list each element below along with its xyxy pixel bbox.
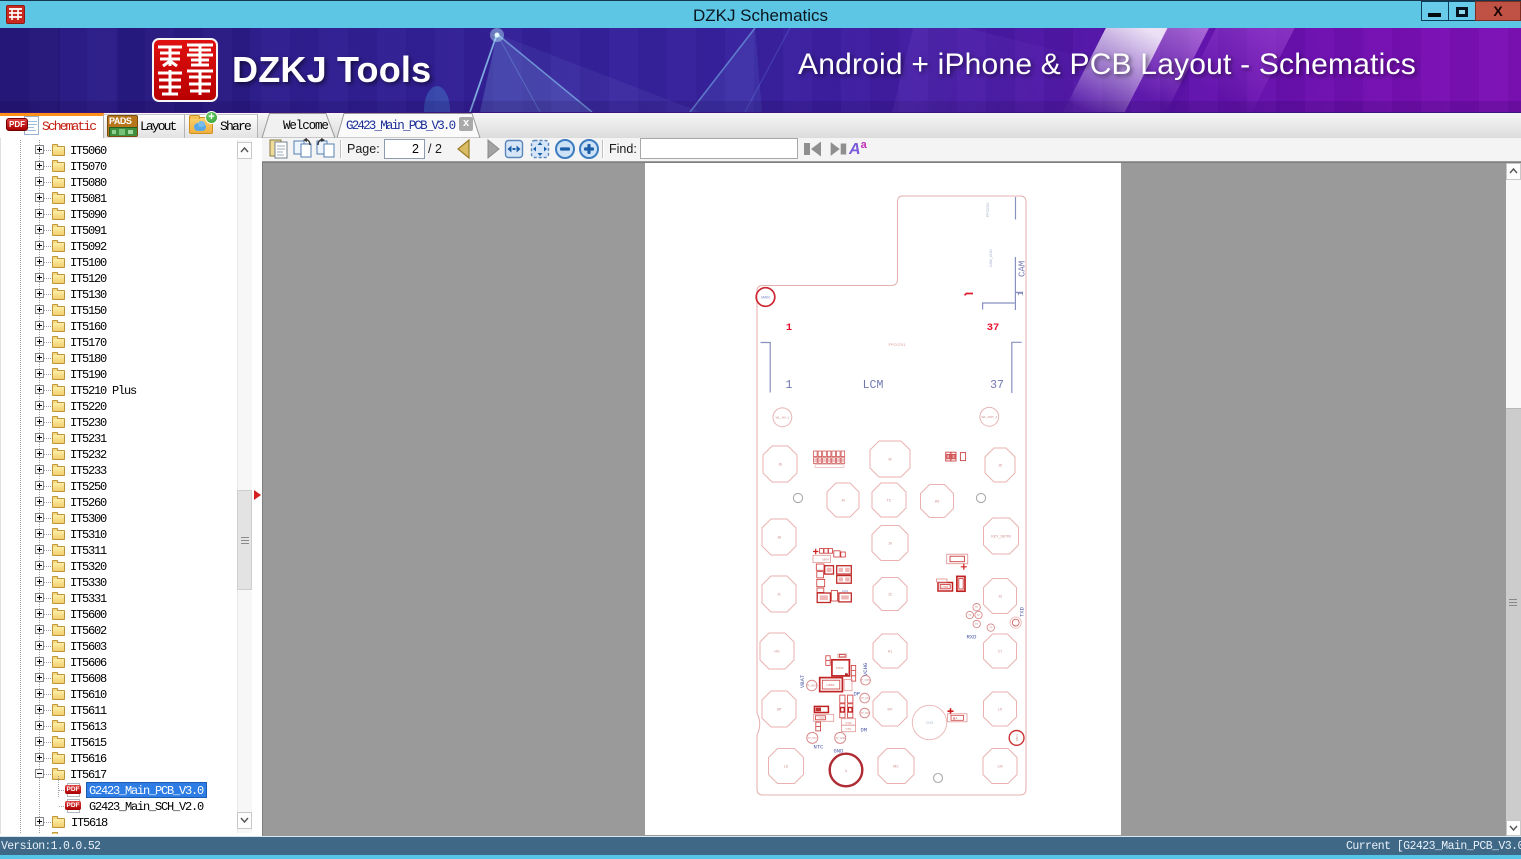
svg-text:A5: A5 [935,499,939,503]
svg-text:TP: TP [975,623,978,626]
svg-text:TC: TC [887,498,892,502]
svg-text:TP: TP [989,627,992,630]
svg-text:RXD: RXD [967,634,978,641]
svg-text:TXD: TXD [1019,606,1026,617]
svg-text:TP_NTC: TP_NTC [808,737,818,740]
svg-text:J3: J3 [998,594,1002,598]
svg-text:1: 1 [845,768,848,773]
svg-text:LM: LM [998,764,1003,768]
svg-text:KEY_SE7IN: KEY_SE7IN [991,534,1011,538]
svg-text:J1: J1 [777,592,781,596]
svg-text:MC: MC [893,764,899,768]
svg-text:37: 37 [987,322,1000,334]
svg-text:J4: J4 [841,498,845,502]
svg-text:MAIN: MAIN [761,296,770,300]
svg-text:DM: DM [861,727,868,734]
svg-text:MIC1: MIC1 [1015,734,1019,741]
svg-text:VBAT: VBAT [799,674,806,688]
svg-text:MT62: MT62 [836,666,844,670]
svg-text:37: 37 [990,379,1004,392]
svg-text:USB1: USB1 [827,683,835,687]
svg-text:J8: J8 [777,535,781,539]
svg-text:TP: TP [975,606,978,609]
svg-text:Y702: Y702 [818,716,825,720]
svg-text:TP_VCHG: TP_VCHG [860,679,871,682]
svg-text:U604: U604 [822,557,830,561]
svg-text:WL_RNT_2: WL_RNT_2 [981,415,997,419]
svg-text:TP_DM: TP_DM [861,712,869,715]
svg-text:M: M [889,457,892,461]
svg-text:TP_VBAT: TP_VBAT [807,684,818,687]
svg-text:DP: DP [854,691,861,698]
svg-text:J6: J6 [778,462,782,466]
svg-text:FPC0301: FPC0301 [986,202,990,217]
svg-text:CAM_CON: CAM_CON [989,249,993,267]
svg-text:Y701: Y701 [846,727,853,731]
svg-text:LS: LS [784,764,789,768]
svg-text:C7: C7 [998,649,1003,653]
svg-text:TP: TP [968,614,971,617]
svg-text:CHG: CHG [926,721,934,725]
svg-text:1: 1 [1017,291,1026,296]
svg-text:U702: U702 [942,585,949,589]
svg-text:LCM: LCM [863,379,884,392]
svg-text:L601: L601 [842,589,849,593]
svg-text:B+: B+ [953,716,957,720]
svg-text:TP_DP: TP_DP [861,697,869,700]
svg-text:A1: A1 [888,649,892,653]
svg-text:M7: M7 [888,707,893,711]
svg-text:1: 1 [786,322,792,334]
svg-text:TP_GND: TP_GND [835,737,845,740]
svg-text:J2: J2 [888,592,892,596]
svg-text:HS: HS [775,649,781,653]
svg-text:L5: L5 [998,707,1002,711]
svg-text:J9: J9 [888,541,892,545]
svg-text:CAM: CAM [1018,261,1028,277]
svg-text:J5: J5 [998,463,1002,467]
svg-text:TP: TP [977,614,980,617]
svg-text:FPC0701: FPC0701 [889,342,907,347]
svg-text:XTAL: XTAL [846,721,853,725]
svg-text:NTC: NTC [814,744,825,751]
svg-text:SP: SP [777,707,782,711]
svg-text:VCHG: VCHG [862,663,869,676]
svg-text:WL_NV_1: WL_NV_1 [776,416,790,420]
svg-text:1: 1 [786,379,793,392]
